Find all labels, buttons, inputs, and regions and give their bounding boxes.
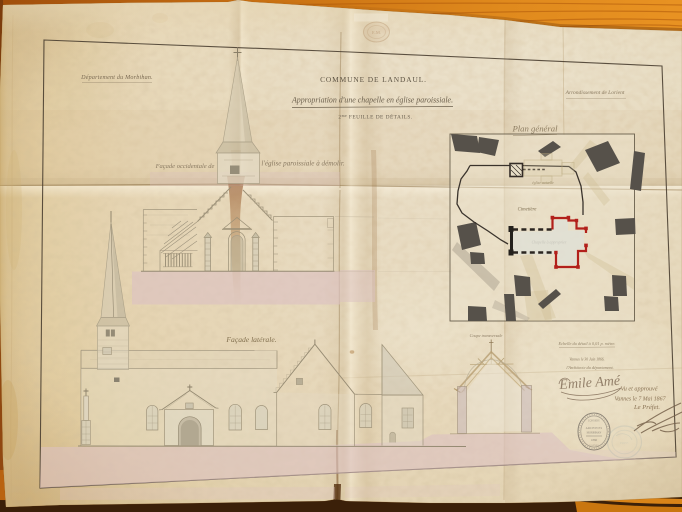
svg-text:MORBIHAN: MORBIHAN bbox=[587, 432, 602, 435]
svg-text:VANNES: VANNES bbox=[589, 444, 599, 447]
svg-text:ARCHIVES: ARCHIVES bbox=[586, 426, 603, 430]
svg-text:église actuelle: église actuelle bbox=[532, 181, 554, 185]
svg-text:Vannes le 30 Juin 1866.: Vannes le 30 Juin 1866. bbox=[569, 358, 604, 362]
svg-text:1866: 1866 bbox=[591, 438, 598, 442]
svg-text:2me FEUILLE DE DÉTAILS.: 2me FEUILLE DE DÉTAILS. bbox=[338, 113, 412, 121]
svg-text:Vannes le 7 Mai 1867: Vannes le 7 Mai 1867 bbox=[614, 397, 666, 403]
svg-text:Plan général: Plan général bbox=[511, 124, 558, 134]
svg-text:Coupe transversale: Coupe transversale bbox=[470, 333, 503, 338]
svg-text:Département du Morbihan.: Département du Morbihan. bbox=[80, 75, 153, 81]
svg-text:Cimetière: Cimetière bbox=[518, 208, 538, 213]
svg-text:l'église paroissiale à démolir: l'église paroissiale à démolir. bbox=[261, 160, 344, 168]
svg-text:COMMUNE DE LANDAUL.: COMMUNE DE LANDAUL. bbox=[320, 75, 427, 84]
svg-text:Le Préfet.: Le Préfet. bbox=[633, 404, 660, 411]
svg-text:PREF.: PREF. bbox=[620, 441, 629, 445]
svg-text:Façade occidentale de: Façade occidentale de bbox=[155, 163, 215, 170]
svg-text:Arrondissement de Lorient: Arrondissement de Lorient bbox=[565, 90, 625, 96]
svg-text:l'Architecte du département.: l'Architecte du département. bbox=[566, 365, 613, 370]
svg-text:Appropriation d'une chapelle e: Appropriation d'une chapelle en église p… bbox=[291, 96, 453, 105]
svg-text:Vu et approuvé: Vu et approuvé bbox=[620, 386, 657, 393]
svg-text:Façade latérale.: Façade latérale. bbox=[225, 335, 276, 344]
svg-text:E.M.: E.M. bbox=[372, 30, 381, 35]
svg-text:CONSERV.: CONSERV. bbox=[588, 420, 601, 423]
